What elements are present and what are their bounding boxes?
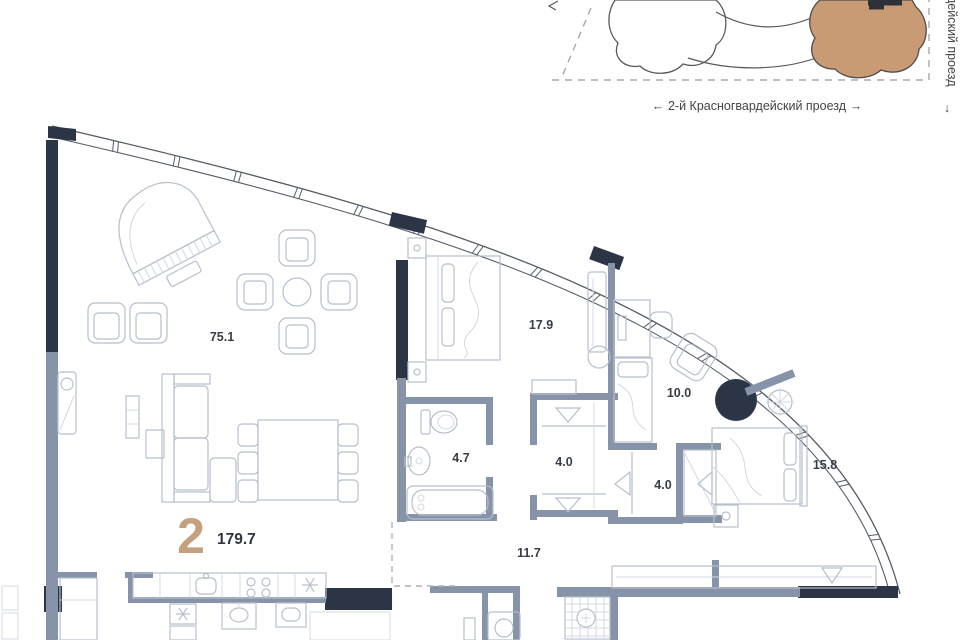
wall-wardrobe2-bottom [608,517,682,524]
table-chair [279,318,315,354]
facade-mullion-tick [294,187,298,197]
island-counter-right [310,612,390,640]
site-plan: ← 2-й Красногвардейский проезд → дейский… [549,0,959,115]
hanger-icon [822,568,842,583]
wall-diagonal [746,373,794,392]
wall-shower-right [610,597,618,640]
wall-left-lower [46,352,58,640]
armchair [88,303,125,343]
table-chair [321,274,357,310]
facade-mullion-tick [299,189,303,199]
building-connector-top [716,12,816,27]
pillow [784,433,796,465]
dining-chair [238,480,258,502]
wall-counter-corner [128,572,133,603]
door-leaf [464,618,475,640]
nightstand [408,238,426,258]
floorplan-page: ← 2-й Красногвардейский проезд → дейский… [0,0,960,640]
hanger-icon [556,498,580,512]
facade-mullion-tick [472,245,478,254]
building-outline-current [810,0,927,78]
single-bed [614,358,652,442]
apartment-info: 2 179.7 [177,508,256,564]
double-bed [426,256,500,360]
sofa-ottoman [210,458,236,502]
wall-wardrobe1-bottom [530,510,618,517]
living-room [58,169,358,502]
nightstand [408,362,426,382]
sofa [162,374,236,502]
dashed-partition [392,522,460,586]
closet-mirror [684,450,716,516]
wall-bath2-inner [482,593,488,640]
facade-mullion-tick [869,535,879,536]
wall-dark-left [46,140,58,352]
facade-mullion-tick [839,484,849,486]
street-arrow-east: → [850,99,863,113]
wall-panel [126,396,139,438]
pillow [784,469,796,501]
fridge-icon [302,578,318,592]
facade-mullion-tick [697,353,706,359]
dining-table [238,420,358,502]
kitchen-sink [196,574,216,595]
room-label-wardrobe1: 4.0 [555,455,572,469]
facade-mullion-tick [234,171,237,181]
room-label-bedroom1: 17.9 [529,318,553,332]
bathroom-sink [405,447,430,475]
table-chair [237,274,273,310]
facade-mullion-tick [836,480,846,482]
wardrobe-1-room [542,402,606,512]
facade-mullion-tick [359,206,364,215]
pillow [442,264,454,302]
facade-mullion-tick [588,292,596,299]
dining-chair [338,424,358,446]
apartment-location-marker [868,0,902,6]
facade-mullion-tick [644,321,653,328]
bedroom-2 [612,426,876,588]
facade-mullion-tick [648,323,657,330]
bedroom-1 [408,238,610,394]
cut-arrow-icon [549,1,558,10]
hanger-icon [556,408,580,422]
dining-chair [238,424,258,446]
wall-bath2-top [430,586,520,593]
exercise-equipment [588,272,610,368]
facade-mullion-tick [238,172,241,182]
toaster [282,608,300,621]
wall-dark-facade-mid [389,212,427,234]
piano-bench [166,261,202,288]
shower [565,597,610,639]
room-label-cabinet: 10.0 [667,386,691,400]
freezer-icon [176,608,190,620]
side-table [146,430,164,458]
apartment-total-area: 179.7 [217,531,256,548]
wall-wardrobe-post [712,560,719,590]
walls [44,126,898,640]
facade-mullion-tick [173,155,175,165]
facade-mullion-tick [871,539,881,540]
island-sink [230,608,248,622]
street-arrow-down: ↓ [944,101,950,115]
apartment-number: 2 [177,508,205,564]
facade-mullion-tick [118,142,119,153]
built-in-wardrobe [612,566,876,588]
wall-bedroom2-closet-left [676,443,683,524]
room-label-living: 75.1 [210,330,234,344]
facade-mullion-tick [178,157,180,167]
dining-chair [338,452,358,474]
toilet [421,410,457,434]
street-label-bottom: 2-й Красногвардейский проезд [668,99,847,113]
hanger-icon [615,472,630,495]
wall-wardrobe1-left-a [530,393,537,445]
facade-mullion-tick [477,246,483,255]
pillow [618,362,648,377]
dining-chair [338,480,358,502]
room-label-corridor: 11.7 [517,546,541,560]
wardrobe-2-room [615,452,632,514]
adjacent-space [2,613,18,639]
round-table [283,278,311,306]
wall-dark-divider [396,260,408,380]
monitor [618,316,626,340]
room-label-wardrobe2: 4.0 [654,478,671,492]
plant [766,388,794,416]
radiator [58,372,76,434]
round-column [715,379,757,421]
street-arrow-west: ← [652,99,665,113]
stove-burners [247,578,270,597]
room-label-bathroom1: 4.7 [452,451,469,465]
wall-dark-facade-start [48,126,76,141]
room-label-bedroom2: 15.8 [813,458,837,472]
apartment-location-marker-tab [869,6,884,10]
desk [614,300,672,357]
bathroom-1 [405,410,493,519]
pillow [442,308,454,346]
wall-dark-kitchen [325,588,392,610]
street-label-right: дейский проезд [945,0,959,87]
facade-mullion-tick [354,205,359,215]
dining-chair [238,452,258,474]
armchair [130,303,167,343]
grand-piano [100,169,228,300]
facade-mullion-tick [530,267,537,275]
adjacent-space [2,586,18,610]
table-chair [279,230,315,266]
kitchen-counter [133,573,326,598]
wall-kitchen-stub-a [57,572,97,578]
dresser [532,380,576,394]
cabinet-room [614,300,794,442]
wall-bath1-right-a [486,397,493,445]
wall-bath1-top [397,397,493,404]
facade-mullion-tick [535,269,542,277]
wall-wardrobe2-top [608,443,657,450]
floor-plan: ← 2-й Красногвардейский проезд → дейский… [0,0,960,640]
site-boundary-left [561,8,591,79]
wall-dark-facade-right [589,246,624,270]
double-bed [712,426,807,506]
building-outline-neighbor [609,0,726,73]
facade-mullion-tick [113,141,114,152]
tall-fridge [60,578,97,640]
